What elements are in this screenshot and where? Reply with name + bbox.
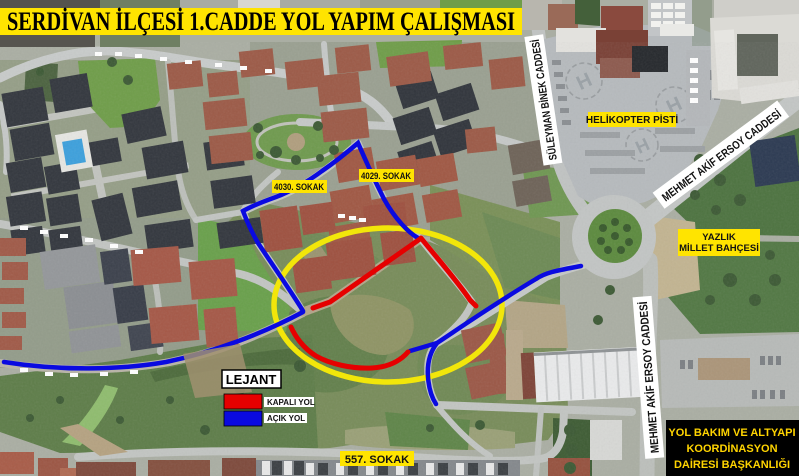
svg-text:AÇIK YOL: AÇIK YOL [267,414,305,423]
svg-text:KAPALI YOL: KAPALI YOL [267,398,315,407]
svg-text:YAZLIK: YAZLIK [702,232,736,243]
svg-text:4029. SOKAK: 4029. SOKAK [361,171,411,181]
svg-text:MİLLET BAHÇESİ: MİLLET BAHÇESİ [679,243,759,254]
svg-text:YOL BAKIM VE ALTYAPI: YOL BAKIM VE ALTYAPI [668,427,795,439]
svg-text:SERDİVAN İLÇESİ 1.CADDE YOL YA: SERDİVAN İLÇESİ 1.CADDE YOL YAPIM ÇALIŞM… [7,7,515,36]
svg-text:DAİRESİ BAŞKANLIĞI: DAİRESİ BAŞKANLIĞI [674,458,790,471]
svg-text:4030. SOKAK: 4030. SOKAK [274,182,324,192]
svg-text:HELİKOPTER PİSTİ: HELİKOPTER PİSTİ [586,113,678,126]
svg-text:LEJANT: LEJANT [226,372,277,387]
svg-text:KOORDİNASYON: KOORDİNASYON [686,442,777,455]
svg-text:557. SOKAK: 557. SOKAK [345,454,409,466]
